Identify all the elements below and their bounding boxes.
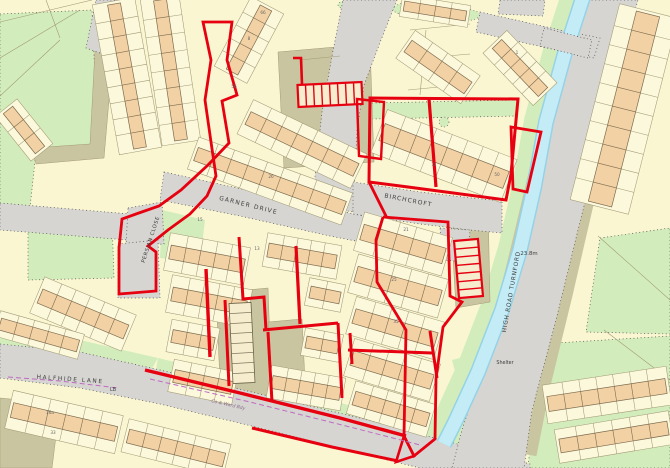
map-viewport[interactable]: GARNER DRIVEBIRCHCROFTPERSIAN CLOSEHIGH … xyxy=(0,0,670,468)
map-annotation: Shelter xyxy=(496,360,513,366)
house-number: 16a xyxy=(46,410,54,415)
map-annotation: LB xyxy=(110,387,116,393)
house-number: 13 xyxy=(254,246,260,251)
house-number: 1 xyxy=(516,50,519,55)
os-map-canvas: GARNER DRIVEBIRCHCROFTPERSIAN CLOSEHIGH … xyxy=(0,0,670,468)
map-annotation: 23.8m xyxy=(520,251,537,257)
house-number: 21 xyxy=(403,227,409,232)
house-number: 50 xyxy=(494,172,500,177)
house-number: 35 xyxy=(393,319,399,324)
house-number: 26 xyxy=(268,174,274,179)
house-number: 33 xyxy=(50,430,56,435)
house-number: 66 xyxy=(260,10,266,15)
house-number: 8 xyxy=(248,36,251,41)
house-number: 15 xyxy=(197,217,203,222)
house-number: 11 xyxy=(431,162,437,167)
house-number: 56 xyxy=(231,84,237,89)
house-number: 25 xyxy=(391,277,397,282)
